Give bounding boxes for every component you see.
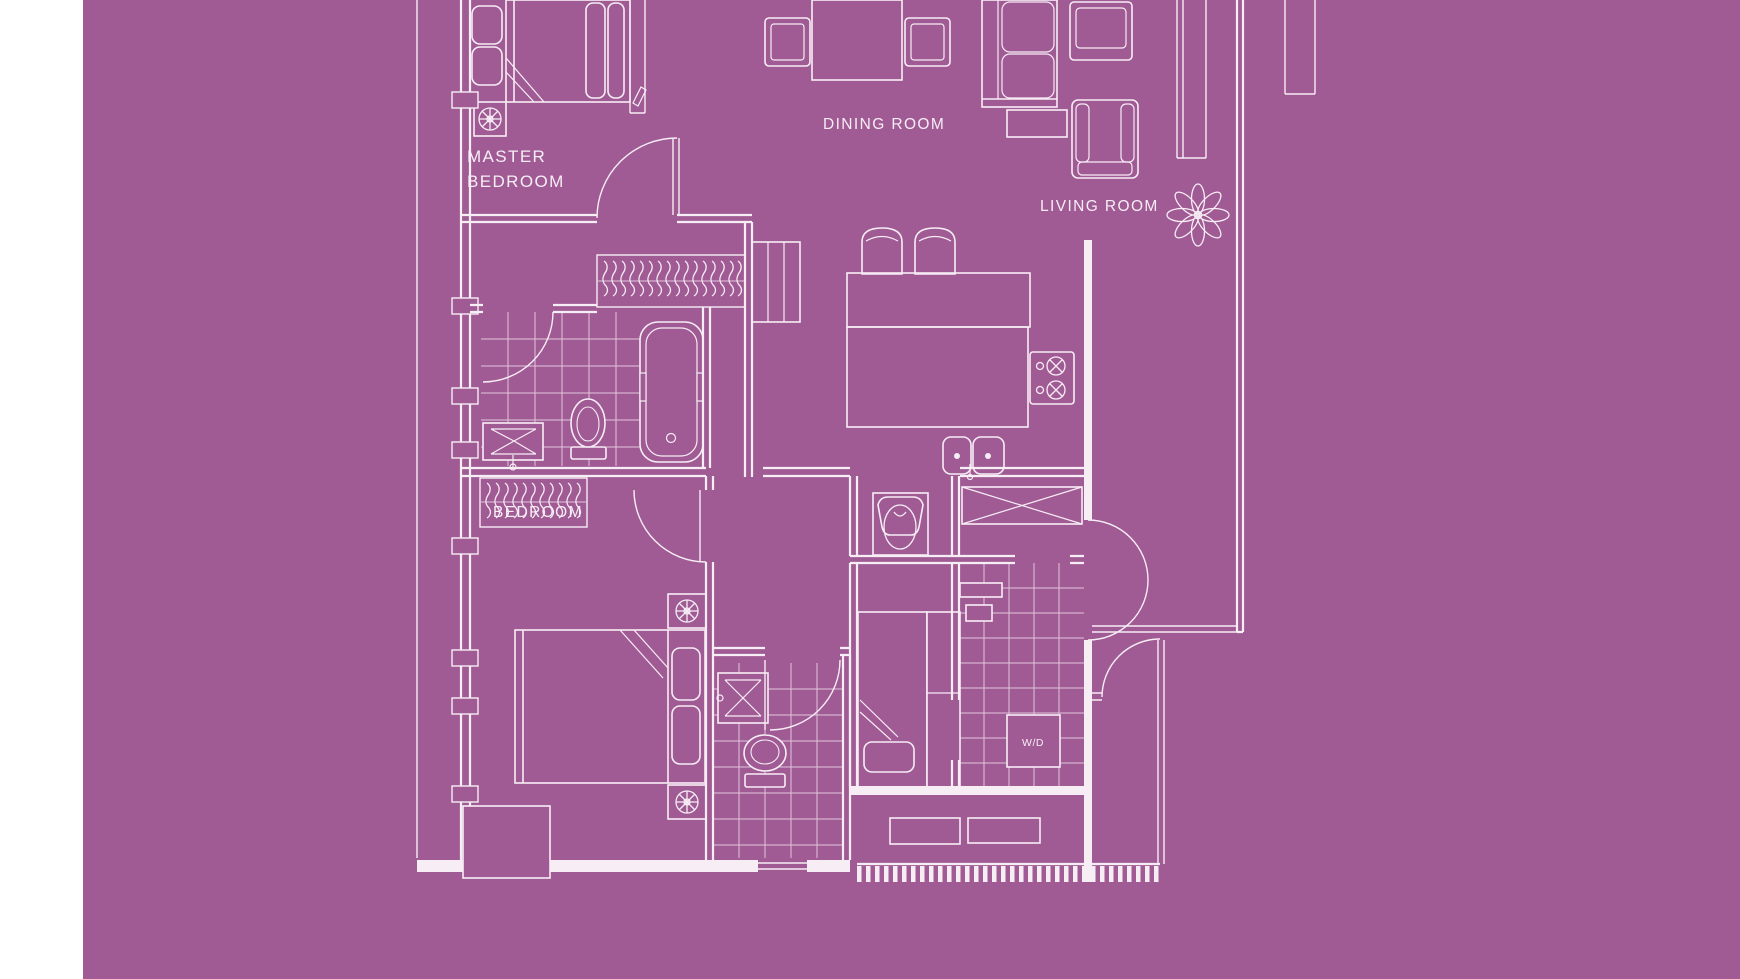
sink-vanity <box>717 673 768 723</box>
washer-dryer-label: W/D <box>1022 737 1044 749</box>
master-nightstand <box>474 102 506 136</box>
toilet <box>571 399 606 459</box>
room-label-dining-room: DINING ROOM <box>823 116 945 133</box>
nightstand <box>668 594 706 628</box>
nightstand <box>668 785 706 819</box>
wc-toilet <box>873 493 928 555</box>
bathtub <box>640 322 703 462</box>
floor-plan-svg: MASTER BEDROOM DINING ROOM LIVING ROOM B… <box>0 0 1740 979</box>
refrigerator-box <box>962 487 1082 524</box>
room-label-bedroom: BEDROOM <box>493 504 583 521</box>
page-margin <box>0 0 83 979</box>
room-label-living-room: LIVING ROOM <box>1040 198 1159 215</box>
toilet <box>744 735 786 787</box>
floor-plan-screenshot: MASTER BEDROOM DINING ROOM LIVING ROOM B… <box>0 0 1740 979</box>
ledge-box <box>463 806 550 878</box>
comb-vent <box>857 866 1160 882</box>
room-label-master-bedroom-line1: MASTER <box>467 147 546 166</box>
stove <box>1030 352 1074 404</box>
table-lamp-icon <box>479 108 501 130</box>
table-lamp-icon <box>676 791 698 813</box>
room-label-master-bedroom-line2: BEDROOM <box>467 172 565 191</box>
table-lamp-icon <box>676 600 698 622</box>
single-bed <box>858 612 960 787</box>
background <box>0 0 1740 979</box>
